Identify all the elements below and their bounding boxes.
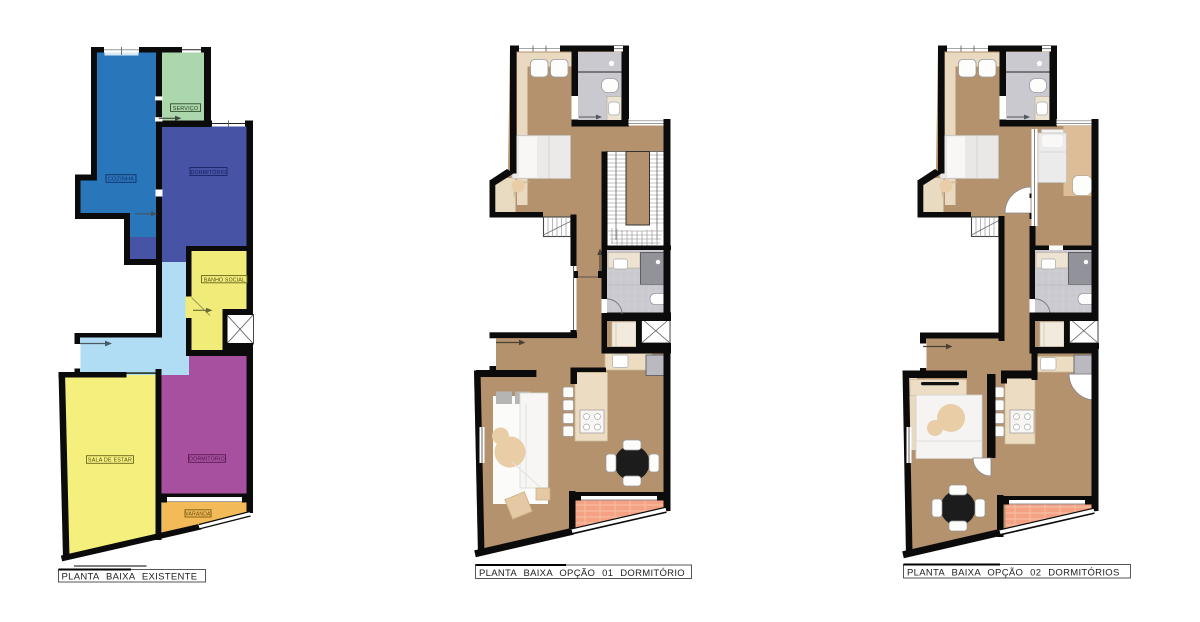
- svg-text:DORMITÓRIO: DORMITÓRIO: [191, 169, 227, 176]
- svg-text:DORMITÓRIO: DORMITÓRIO: [189, 456, 225, 463]
- svg-text:SALA DE ESTAR: SALA DE ESTAR: [88, 458, 132, 464]
- svg-text:PLANTA BAIXA EXISTENTE: PLANTA BAIXA EXISTENTE: [62, 572, 198, 583]
- svg-text:VARANDA: VARANDA: [185, 512, 211, 518]
- svg-text:SERVIÇO: SERVIÇO: [173, 106, 199, 112]
- svg-text:COZINHA: COZINHA: [108, 177, 134, 183]
- svg-text:PLANTA BAIXA OPÇÃO 02 DORMITÓR: PLANTA BAIXA OPÇÃO 02 DORMITÓRIOS: [907, 567, 1120, 578]
- svg-text:PLANTA BAIXA OPÇÃO 01 DORMITÓR: PLANTA BAIXA OPÇÃO 01 DORMITÓRIO: [479, 568, 685, 579]
- svg-text:BANHO SOCIAL: BANHO SOCIAL: [204, 277, 245, 283]
